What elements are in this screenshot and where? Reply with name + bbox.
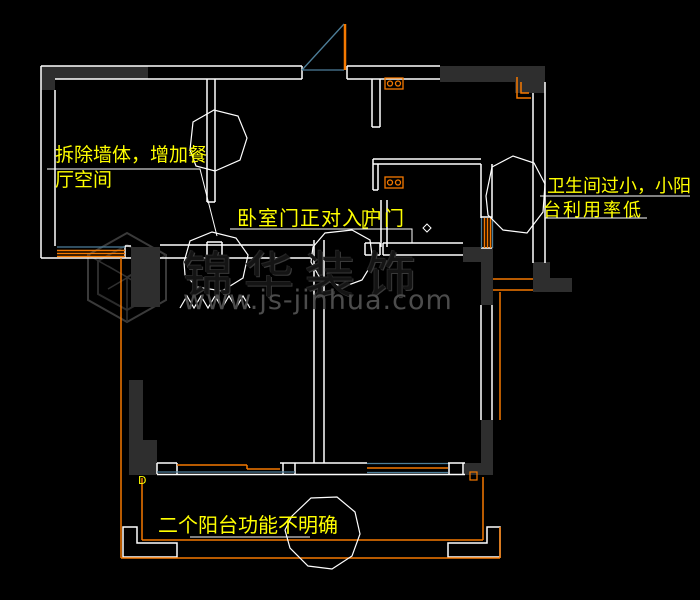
annotation-dining-line1: 拆除墙体，增加餐 <box>55 146 207 166</box>
gas-meter-icon <box>385 78 403 188</box>
watermark-url: www.js-jinhua.com <box>183 285 453 316</box>
annotation-bedroom-door: 卧室门正对入户门 <box>237 208 405 229</box>
node-diamond-icon <box>423 224 431 232</box>
cloud-bathroom <box>486 156 545 233</box>
revision-clouds <box>180 110 545 569</box>
balcony-point-label: D <box>138 474 146 487</box>
annotation-bathroom-line1: 卫生间过小，小阳 <box>547 178 691 197</box>
annotation-dining-line2: 厅空间 <box>55 171 112 191</box>
balcony-corner-right <box>448 527 500 557</box>
annotation-balcony: 二个阳台功能不明确 <box>158 515 338 536</box>
annotation-bathroom-line2: 台利用率低 <box>543 202 643 221</box>
cad-floorplan-viewport: D 锦华装饰 www.js-jinhua.com 拆除墙体，增加餐 厅空间 卧室… <box>0 0 700 600</box>
